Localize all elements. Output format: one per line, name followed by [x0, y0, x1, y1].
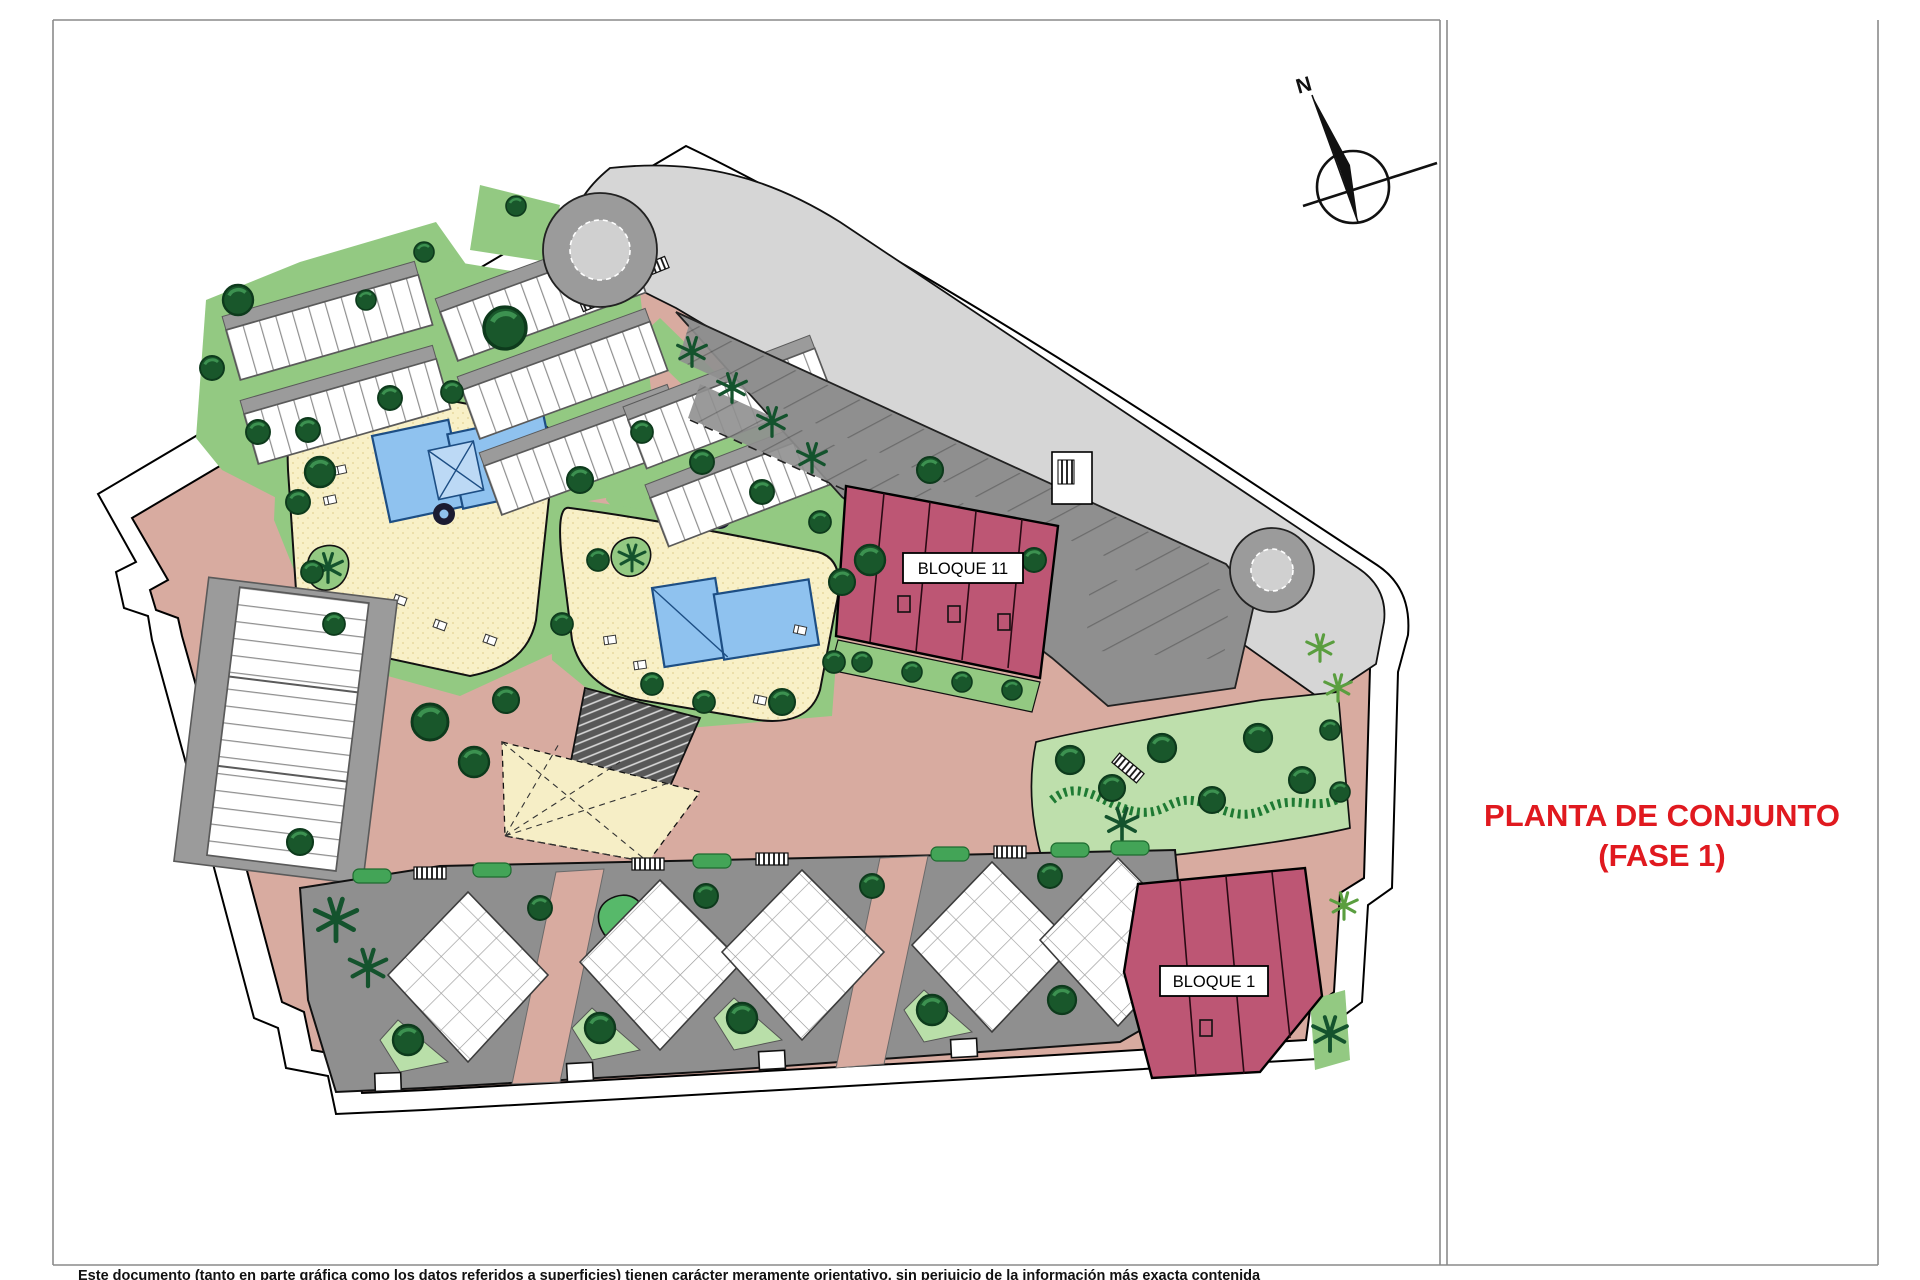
title-block: PLANTA DE CONJUNTO (FASE 1) [1484, 798, 1840, 873]
bloque-1-label: BLOQUE 1 [1160, 966, 1268, 996]
drawing-title-line1: PLANTA DE CONJUNTO [1484, 798, 1840, 833]
roundabout-north [543, 193, 657, 307]
stair-core [1052, 452, 1092, 504]
footer-disclaimer: Este documento (tanto en parte gráfica c… [78, 1268, 1261, 1280]
bloque-11-label-text: BLOQUE 11 [918, 560, 1008, 578]
site-plan-drawing: BLOQUE 11 BLOQUE 1 N PLANTA DE CONJUNTO … [0, 0, 1920, 1280]
bloque-1-label-text: BLOQUE 1 [1173, 973, 1256, 991]
north-compass: N [1293, 72, 1437, 223]
drawing-title-line2: (FASE 1) [1598, 838, 1725, 873]
north-label: N [1293, 72, 1314, 98]
sheet: BLOQUE 11 BLOQUE 1 N PLANTA DE CONJUNTO … [0, 0, 1920, 1280]
townhouse-block-west [174, 577, 397, 884]
bloque-11-label: BLOQUE 11 [903, 553, 1023, 583]
roundabout-east [1230, 528, 1314, 612]
